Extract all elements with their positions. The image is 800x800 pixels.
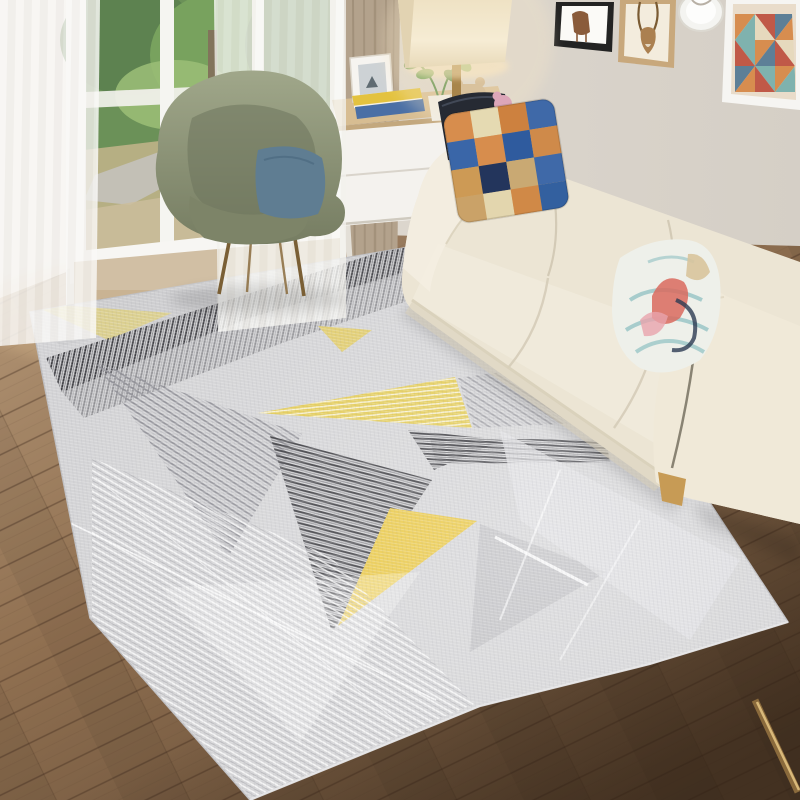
checker-cell	[502, 130, 534, 162]
checker-cell	[451, 166, 483, 198]
sheer-panel-left-folds	[0, 0, 100, 346]
checker-cell	[470, 107, 502, 139]
checker-cell	[534, 153, 566, 185]
chair-shadow	[170, 285, 346, 313]
checker-cell	[506, 157, 538, 189]
checker-cell	[447, 139, 479, 171]
art-sweater-mosaic	[735, 14, 795, 92]
checker-cell	[498, 102, 530, 134]
art-figure	[572, 11, 590, 35]
checkered-grid	[442, 98, 570, 226]
floral-pillow	[612, 239, 721, 372]
scene-canvas	[0, 0, 800, 800]
lamp-shade	[398, 0, 512, 68]
checker-cell	[474, 134, 506, 166]
checker-cell	[530, 125, 562, 157]
checkered-pillow	[442, 98, 570, 226]
checker-cell	[479, 162, 511, 194]
living-room-photo	[0, 0, 800, 800]
